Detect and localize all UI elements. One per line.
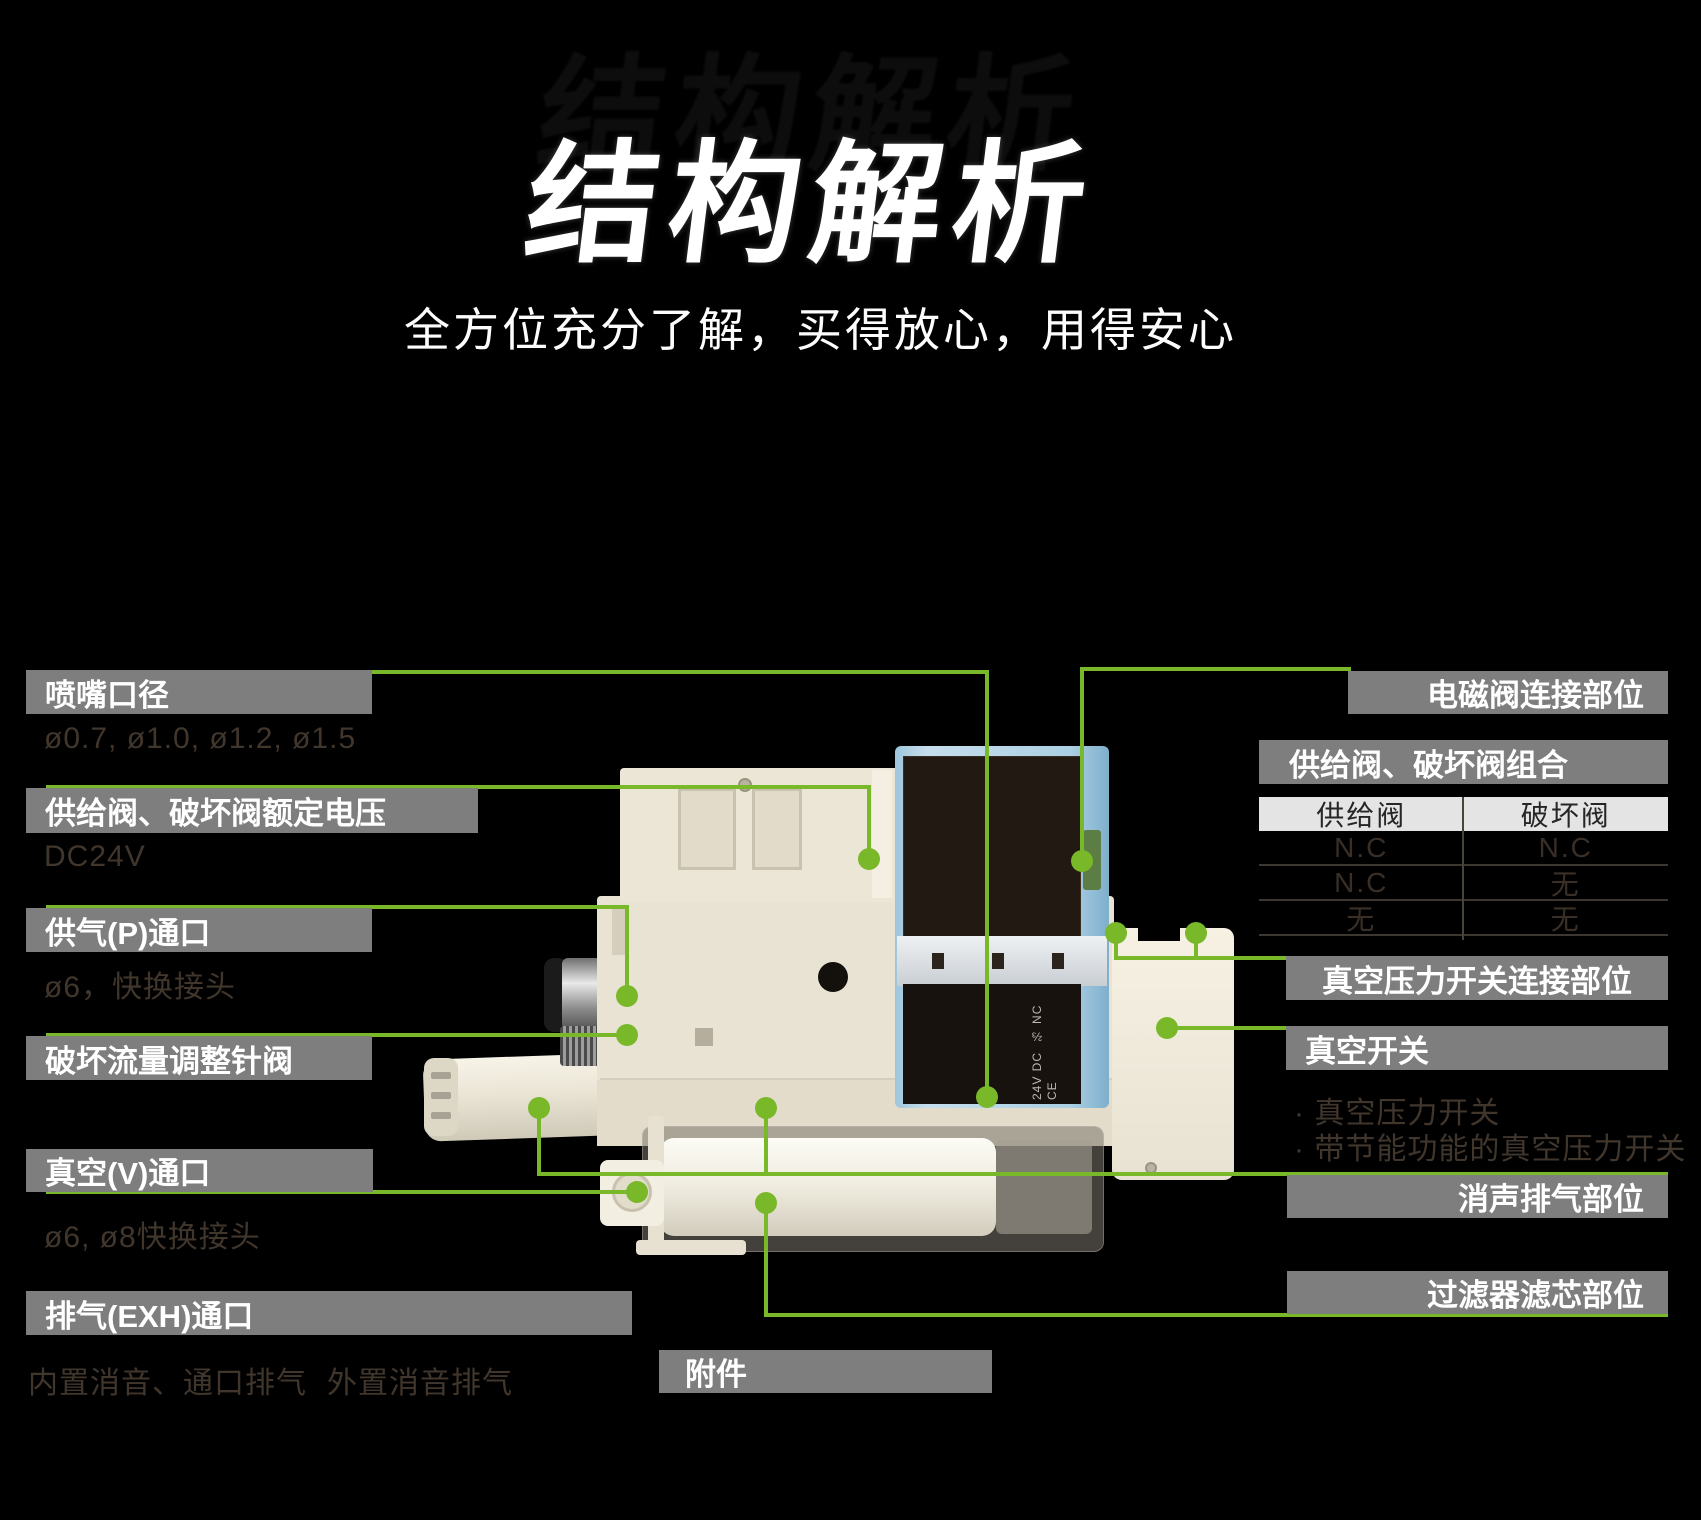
label-accessories: 附件 <box>659 1350 992 1393</box>
body-slot <box>612 905 626 955</box>
label-valve-combination: 供给阀、破坏阀组合 <box>1259 740 1668 784</box>
label-solenoid-connection: 电磁阀连接部位 <box>1348 671 1668 714</box>
label-exhaust-port: 排气(EXH)通口 <box>26 1291 632 1335</box>
silencer-end-cap <box>424 1058 458 1136</box>
page-subtitle: 全方位充分了解，买得放心，用得安心 <box>0 294 1641 360</box>
note-exhaust-external: 外置消音排气 <box>327 1358 513 1402</box>
label-silencer-exhaust: 消声排气部位 <box>1287 1175 1668 1218</box>
silencer-slot <box>431 1092 451 1099</box>
note-exhaust-internal: 内置消音、通口排气 <box>28 1358 307 1402</box>
screw <box>738 778 752 792</box>
note-vacuum-switch-type-2: · 带节能功能的真空压力开关 <box>1294 1124 1686 1168</box>
vacuum-switch-body <box>1112 928 1234 1180</box>
body-round-hole <box>818 962 848 992</box>
rail-pin <box>932 953 944 969</box>
filter-inner-tube <box>996 1140 1092 1234</box>
note-vacuum-port: ø6, ø8快换接头 <box>44 1212 261 1256</box>
label-rated-voltage: 供给阀、破坏阀额定电压 <box>26 788 478 833</box>
ejector-top-block <box>620 768 907 902</box>
v-port-opening <box>612 1172 652 1212</box>
label-vacuum-switch: 真空开关 <box>1286 1026 1668 1070</box>
solenoid-rail <box>897 936 1107 986</box>
solenoid-valve-unit <box>895 746 1109 1108</box>
marking-line: ⅔ NC <box>1030 1005 1044 1044</box>
label-vacuum-port: 真空(V)通口 <box>26 1149 373 1192</box>
marking-line: CE <box>1045 1081 1059 1100</box>
rail-pin <box>992 953 1004 969</box>
body-square-hole <box>695 1028 713 1046</box>
combo-cell: N.C <box>1259 831 1464 864</box>
marking-line: 24V DC <box>1030 1052 1044 1100</box>
combo-cell: N.C <box>1259 866 1464 899</box>
label-filter-element: 过滤器滤芯部位 <box>1287 1271 1668 1314</box>
mounting-foot <box>636 1240 746 1255</box>
solenoid-pcb <box>1083 830 1101 890</box>
switch-body-notch <box>1138 928 1180 941</box>
screw <box>1145 1162 1157 1174</box>
rail-pin <box>1052 953 1064 969</box>
combo-col-break-valve: 破坏阀 <box>1464 797 1669 831</box>
label-pressure-switch-connection: 真空压力开关连接部位 <box>1286 956 1668 1000</box>
filter-element <box>660 1138 996 1236</box>
top-block-cutout <box>678 788 736 870</box>
note-supply-port: ø6，快换接头 <box>44 962 236 1006</box>
combo-cell: 无 <box>1464 901 1669 934</box>
combo-col-supply-valve: 供给阀 <box>1259 797 1464 831</box>
label-supply-port: 供气(P)通口 <box>26 908 372 952</box>
combo-cell: N.C <box>1464 831 1669 864</box>
combo-cell: 无 <box>1464 866 1669 899</box>
valve-combo-table: 供给阀 破坏阀 N.C N.C N.C 无 无 无 <box>1259 797 1668 940</box>
solenoid-smoke-cover <box>903 756 1081 938</box>
combo-cell: 无 <box>1259 901 1464 934</box>
solenoid-marking: 24V DC ⅔ NC CE <box>1030 990 1076 1100</box>
note-rated-voltage: DC24V <box>44 840 146 874</box>
page-title: 结构解析 <box>0 98 1637 289</box>
silencer-slot <box>431 1112 451 1119</box>
top-block-cutout <box>752 788 802 870</box>
structure-analysis-poster: 结构解析 结构解析 全方位充分了解，买得放心，用得安心 <box>0 0 1701 1520</box>
combo-table-divider <box>1462 797 1464 940</box>
top-block-edge-highlight <box>872 770 892 898</box>
note-nozzle-diameter: ø0.7, ø1.0, ø1.2, ø1.5 <box>44 722 356 756</box>
silencer-slot <box>431 1072 451 1079</box>
label-nozzle-diameter: 喷嘴口径 <box>26 670 372 714</box>
label-needle-valve: 破坏流量调整针阀 <box>26 1036 372 1080</box>
